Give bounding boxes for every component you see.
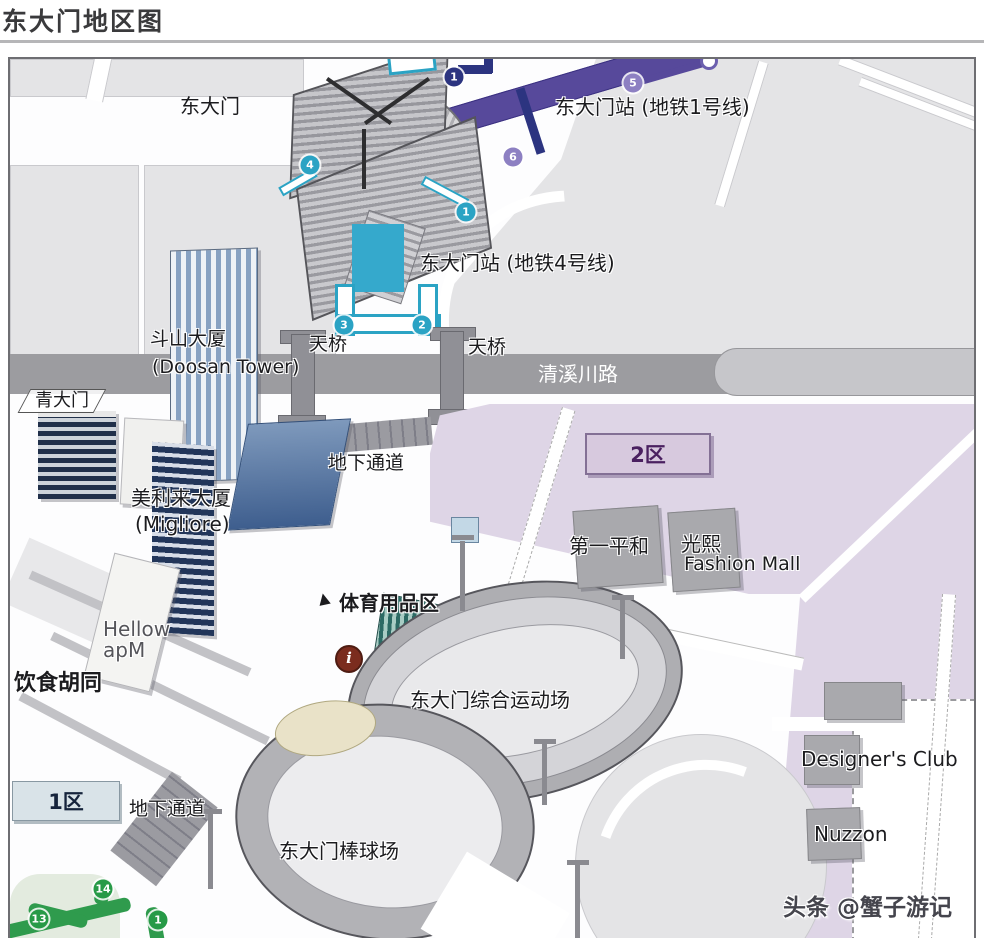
underpass-label-top: 地下通道 (328, 453, 404, 474)
footbridge-label-left: 天桥 (309, 334, 347, 355)
floodlight-pole (452, 535, 474, 540)
underpass-label-bottom: 地下通道 (129, 799, 205, 820)
main-stadium-label: 东大门综合运动场 (410, 689, 570, 711)
line4-station-label: 东大门站 (地铁4号线) (420, 252, 615, 274)
article-map-figure: 东大门地区图 (0, 0, 984, 938)
zone2-badge-label: 2区 (630, 439, 666, 469)
market-alley (18, 692, 181, 784)
exit-marker-3: 3 (335, 316, 354, 335)
zone2-badge: 2区 (585, 433, 711, 475)
city-block (10, 59, 304, 97)
designers-club-label: Designer's Club (801, 748, 958, 770)
zone1-badge: 1区 (12, 781, 120, 821)
hellow-apm-label-1: Hellow (103, 618, 170, 640)
city-block (10, 165, 139, 356)
floodlight-pole (575, 865, 580, 938)
baseball-stadium (223, 689, 546, 938)
mall-building (824, 682, 902, 720)
qingdamen-building (38, 411, 116, 499)
zone1-badge-label: 1区 (48, 786, 84, 816)
dongdaemun-area-map: 1区 2区 东大门 东大门站 (地铁1号线) 东大门站 (地铁4号线) 斗山大厦… (8, 57, 976, 938)
exit-marker-1-line4: 1 (457, 203, 476, 222)
page-title: 东大门地区图 (2, 2, 164, 38)
migliore-label-cn: 美利来大厦 (131, 487, 231, 509)
exit-marker-2: 2 (413, 316, 432, 335)
floodlight-pole (460, 541, 465, 611)
floodlight-pole (534, 739, 556, 744)
gate-roof-ridge (362, 129, 366, 189)
exit-marker-5: 5 (624, 74, 643, 93)
doosan-label-cn: 斗山大厦 (150, 329, 226, 350)
stop-marker-1-green: 1 (149, 911, 168, 930)
up-arrow-icon: ▲ (316, 589, 331, 608)
exit-marker-1-line1: 1 (445, 68, 464, 87)
hellow-apm-label-2: apM (103, 639, 145, 661)
stop-marker-14: 14 (94, 880, 113, 899)
info-icon: i (335, 645, 363, 673)
cheonggye-road-elevated (714, 348, 976, 396)
subway-line1-connector (484, 57, 493, 73)
floodlight-pole (612, 595, 634, 600)
guangxi-label-cn: 光熙 (681, 533, 721, 555)
floodlight-pole (620, 599, 625, 659)
floodlight-pole (208, 814, 213, 889)
underpass (110, 772, 217, 887)
floodlight-pole (542, 743, 547, 805)
title-divider (0, 40, 984, 43)
food-alley-label: 饮食胡同 (14, 672, 102, 696)
exit-marker-6: 6 (504, 148, 523, 167)
footbridge-label-right: 天桥 (468, 337, 506, 358)
guangxi-label-en: Fashion Mall (684, 554, 800, 575)
qingdamen-label-box: 青大门 (18, 389, 107, 413)
watermark: 头条 @蟹子游记 (783, 888, 952, 922)
qingdamen-label: 青大门 (35, 391, 89, 411)
cheonggye-road-label: 清溪川路 (538, 363, 618, 385)
gate-label: 东大门 (180, 95, 240, 117)
migliore-building (227, 418, 351, 530)
doosan-label-en: (Doosan Tower) (152, 357, 299, 378)
line1-station-label: 东大门站 (地铁1号线) (555, 96, 750, 118)
sports-goods-zone-label: 体育用品区 (339, 592, 439, 614)
migliore-label-en: (Migliore) (135, 513, 230, 535)
nuzzon-label: Nuzzon (814, 823, 888, 845)
subway-line4-band (352, 224, 404, 292)
exit-marker-4: 4 (301, 156, 320, 175)
stop-marker-13: 13 (30, 910, 49, 929)
diyi-pinghe-label: 第一平和 (569, 535, 649, 557)
floodlight-pole (567, 860, 589, 865)
baseball-stadium-label: 东大门棒球场 (279, 840, 399, 862)
